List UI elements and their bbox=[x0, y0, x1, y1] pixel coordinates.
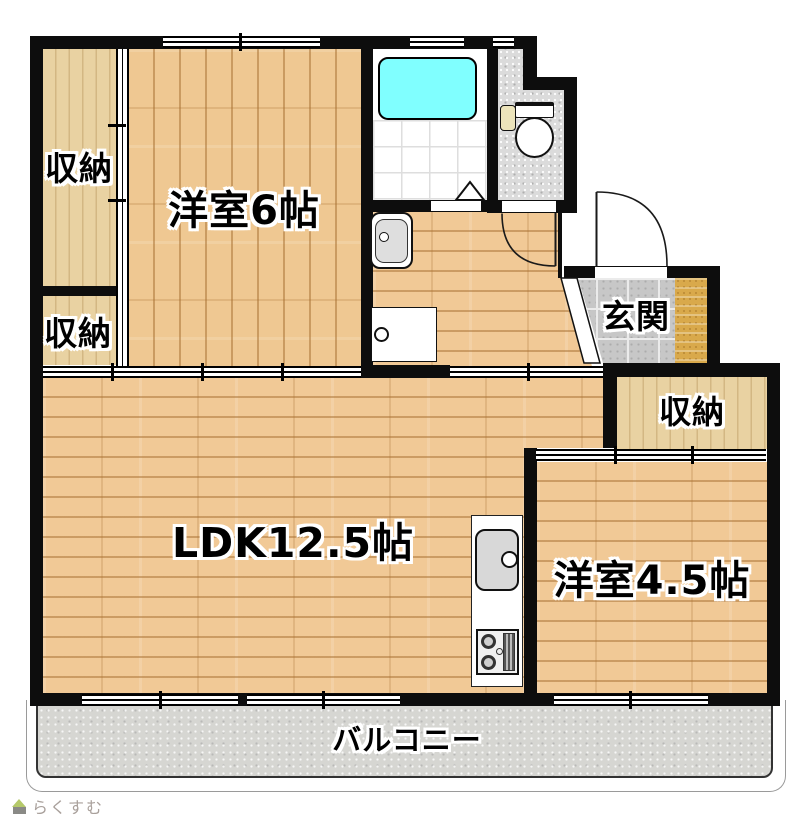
window-western6-top bbox=[163, 36, 320, 48]
room-label-western45: 洋室4.5帖 bbox=[554, 548, 751, 606]
room-label-balcony: バルコニー bbox=[332, 717, 481, 759]
wall-right-lower bbox=[767, 363, 780, 706]
toilet-tank bbox=[515, 102, 554, 118]
watermark: らくすむ bbox=[12, 794, 104, 818]
room-label-entrance: 玄関 bbox=[602, 290, 670, 338]
sliding-door-closet-left bbox=[116, 49, 129, 366]
door-tick bbox=[201, 363, 204, 381]
watermark-text: らくすむ bbox=[32, 794, 104, 818]
gas-stove-icon bbox=[476, 629, 519, 675]
stove-burner bbox=[481, 655, 496, 670]
wall-closet-right-left bbox=[603, 363, 617, 448]
sliding-door-western45-top bbox=[536, 449, 766, 461]
door-tick bbox=[108, 199, 126, 202]
wall-western45-left bbox=[524, 448, 537, 693]
stove-grill bbox=[503, 633, 515, 671]
entrance-doorway-gap bbox=[595, 267, 667, 278]
wall-left bbox=[30, 36, 43, 706]
room-label-closet-right: 収納 bbox=[659, 387, 725, 433]
bathroom-doorway-gap bbox=[431, 201, 481, 211]
toilet-icon bbox=[515, 117, 554, 158]
window-tick bbox=[159, 691, 162, 709]
wall-under-washer bbox=[361, 365, 450, 378]
entrance-door-swing-arc bbox=[597, 192, 668, 266]
room-label-western6: 洋室6帖 bbox=[168, 178, 320, 236]
wall-bath-toilet bbox=[487, 36, 498, 212]
door-tick bbox=[111, 363, 114, 381]
window-tick bbox=[239, 33, 242, 51]
washing-machine-drain bbox=[374, 327, 389, 342]
wall-toilet-right bbox=[564, 77, 577, 212]
door-tick bbox=[691, 446, 694, 464]
washbasin-drain bbox=[379, 232, 389, 242]
shoe-cabinet-icon bbox=[675, 278, 707, 363]
door-tick bbox=[108, 124, 126, 127]
toilet-doorway-gap bbox=[502, 201, 556, 212]
window-toilet-top bbox=[493, 36, 514, 48]
window-tick bbox=[322, 691, 325, 709]
wall-entrance-right bbox=[707, 266, 720, 377]
room-label-closet-upper-left: 収納 bbox=[45, 142, 113, 190]
window-tick bbox=[629, 691, 632, 709]
floor-plan: 洋室6帖 LDK12.5帖 洋室4.5帖 収納 収納 収納 玄関 バルコニー ら… bbox=[0, 0, 812, 819]
toilet-side-unit bbox=[500, 105, 516, 131]
room-label-closet-lower-left: 収納 bbox=[44, 307, 112, 355]
washbasin-bowl bbox=[375, 219, 408, 263]
stove-burner bbox=[481, 634, 496, 649]
bathroom-tile-grid bbox=[373, 120, 487, 200]
door-tick bbox=[527, 363, 530, 381]
sink-faucet bbox=[501, 551, 518, 568]
stove-knob bbox=[496, 648, 503, 655]
bathtub-icon bbox=[378, 57, 477, 120]
wall-entry-left-thin bbox=[558, 200, 562, 278]
wall-entrance-bottom bbox=[603, 363, 780, 377]
room-label-ldk: LDK12.5帖 bbox=[172, 509, 414, 569]
door-tick bbox=[614, 446, 617, 464]
rakusumu-house-icon bbox=[12, 799, 27, 814]
door-tick bbox=[281, 363, 284, 381]
window-bathroom-top bbox=[410, 36, 464, 48]
